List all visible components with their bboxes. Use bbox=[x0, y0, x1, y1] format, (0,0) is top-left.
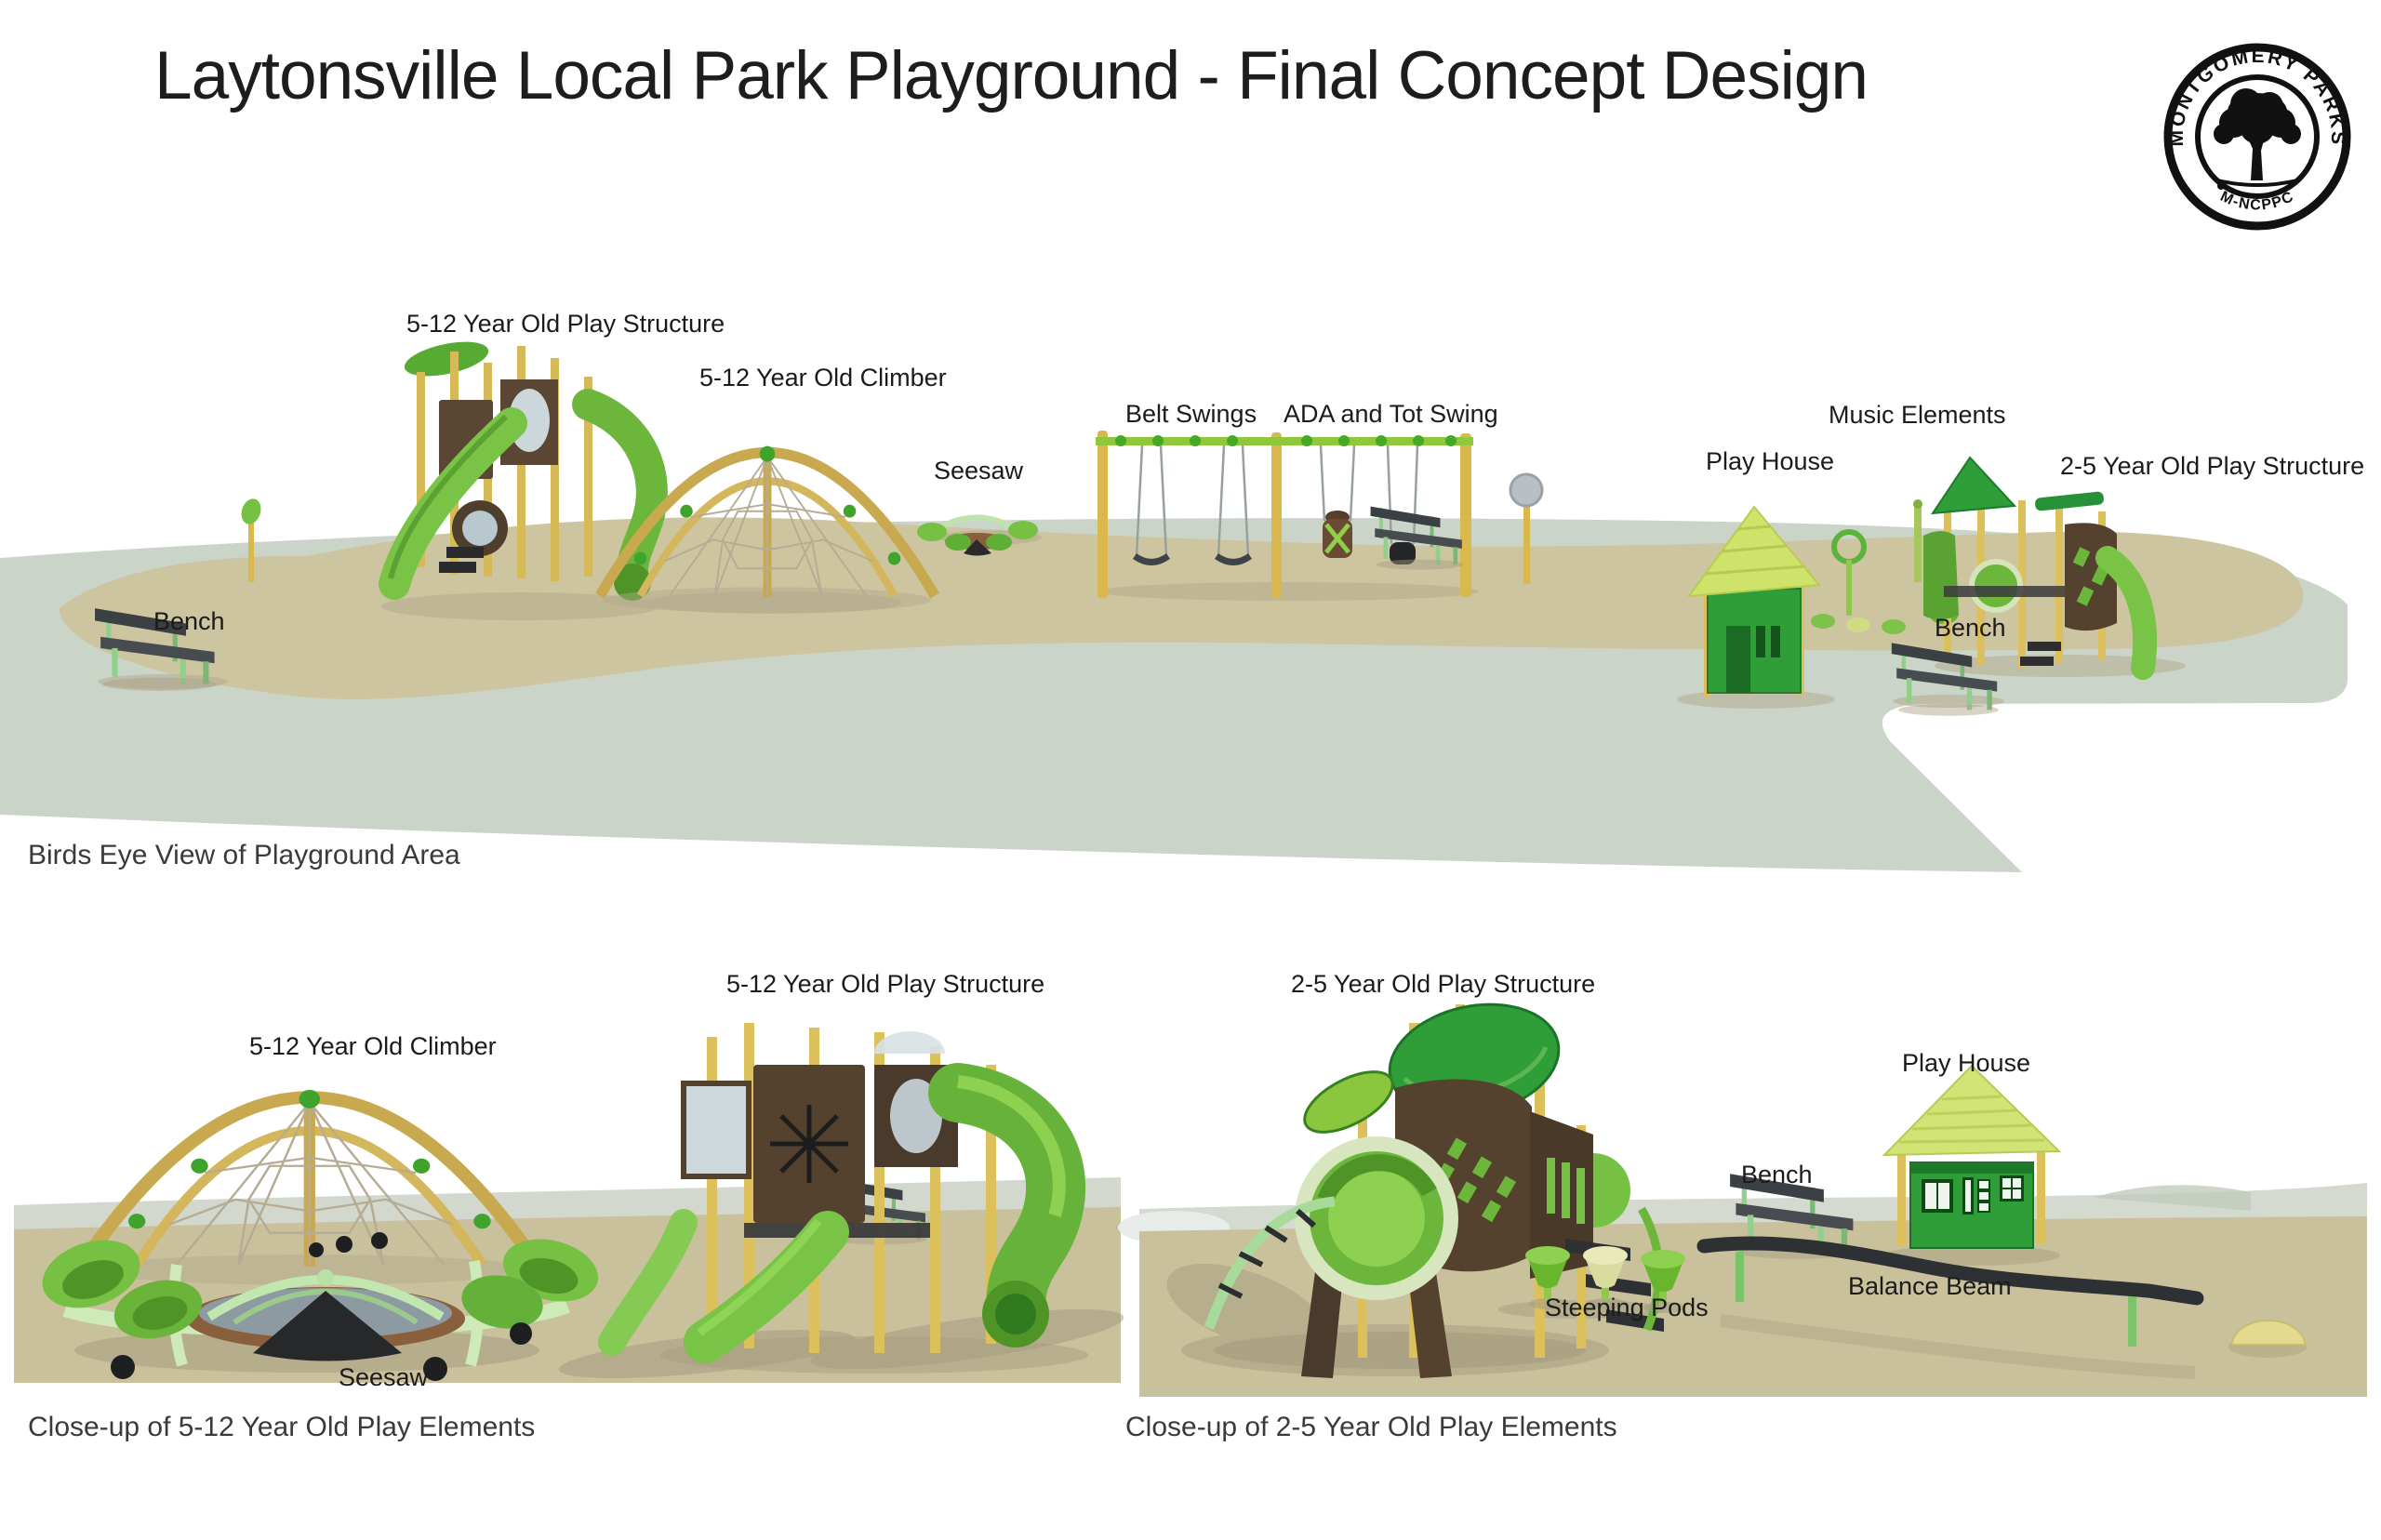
caption-birdseye: Birds Eye View of Playground Area bbox=[28, 840, 460, 871]
label-closeup-play-house: Play House bbox=[1902, 1049, 2030, 1078]
label-play-house: Play House bbox=[1706, 447, 1834, 476]
closeup-2-5-render bbox=[1118, 989, 2367, 1397]
label-steeping-pods: Steeping Pods bbox=[1545, 1294, 1709, 1322]
scene-art bbox=[0, 0, 2381, 1540]
label-closeup-climber-5-12: 5-12 Year Old Climber bbox=[249, 1032, 497, 1061]
svg-text:M-NCPPC: M-NCPPC bbox=[2217, 189, 2296, 214]
caption-closeup-5-12: Close-up of 5-12 Year Old Play Elements bbox=[28, 1412, 535, 1443]
caption-closeup-2-5: Close-up of 2-5 Year Old Play Elements bbox=[1125, 1412, 1617, 1443]
label-climber-5-12: 5-12 Year Old Climber bbox=[699, 364, 947, 392]
logo-bottom-text: M-NCPPC bbox=[2217, 189, 2296, 214]
tree-icon bbox=[2214, 88, 2301, 190]
label-closeup-play-structure-2-5: 2-5 Year Old Play Structure bbox=[1291, 970, 1595, 999]
label-bench-left: Bench bbox=[153, 607, 225, 636]
label-belt-swings: Belt Swings bbox=[1125, 400, 1257, 429]
label-closeup-play-structure-5-12: 5-12 Year Old Play Structure bbox=[726, 970, 1044, 999]
label-closeup-seesaw: Seesaw bbox=[339, 1363, 428, 1392]
closeup-5-12-render bbox=[14, 1023, 1126, 1388]
label-play-structure-5-12: 5-12 Year Old Play Structure bbox=[406, 310, 725, 339]
label-music-elements: Music Elements bbox=[1829, 401, 2006, 430]
montgomery-parks-logo: MONTGOMERY PARKS M-NCPPC bbox=[2156, 41, 2359, 236]
label-bench-right: Bench bbox=[1935, 614, 2006, 643]
concept-design-poster: Laytonsville Local Park Playground - Fin… bbox=[0, 0, 2381, 1540]
label-play-structure-2-5: 2-5 Year Old Play Structure bbox=[2060, 452, 2364, 481]
play-house-closeup-illustration bbox=[1884, 1066, 2059, 1248]
label-seesaw: Seesaw bbox=[934, 457, 1023, 485]
label-closeup-bench: Bench bbox=[1741, 1161, 1813, 1189]
label-balance-beam: Balance Beam bbox=[1848, 1272, 2012, 1301]
label-ada-tot-swing: ADA and Tot Swing bbox=[1284, 400, 1498, 429]
page-title: Laytonsville Local Park Playground - Fin… bbox=[154, 37, 1868, 114]
